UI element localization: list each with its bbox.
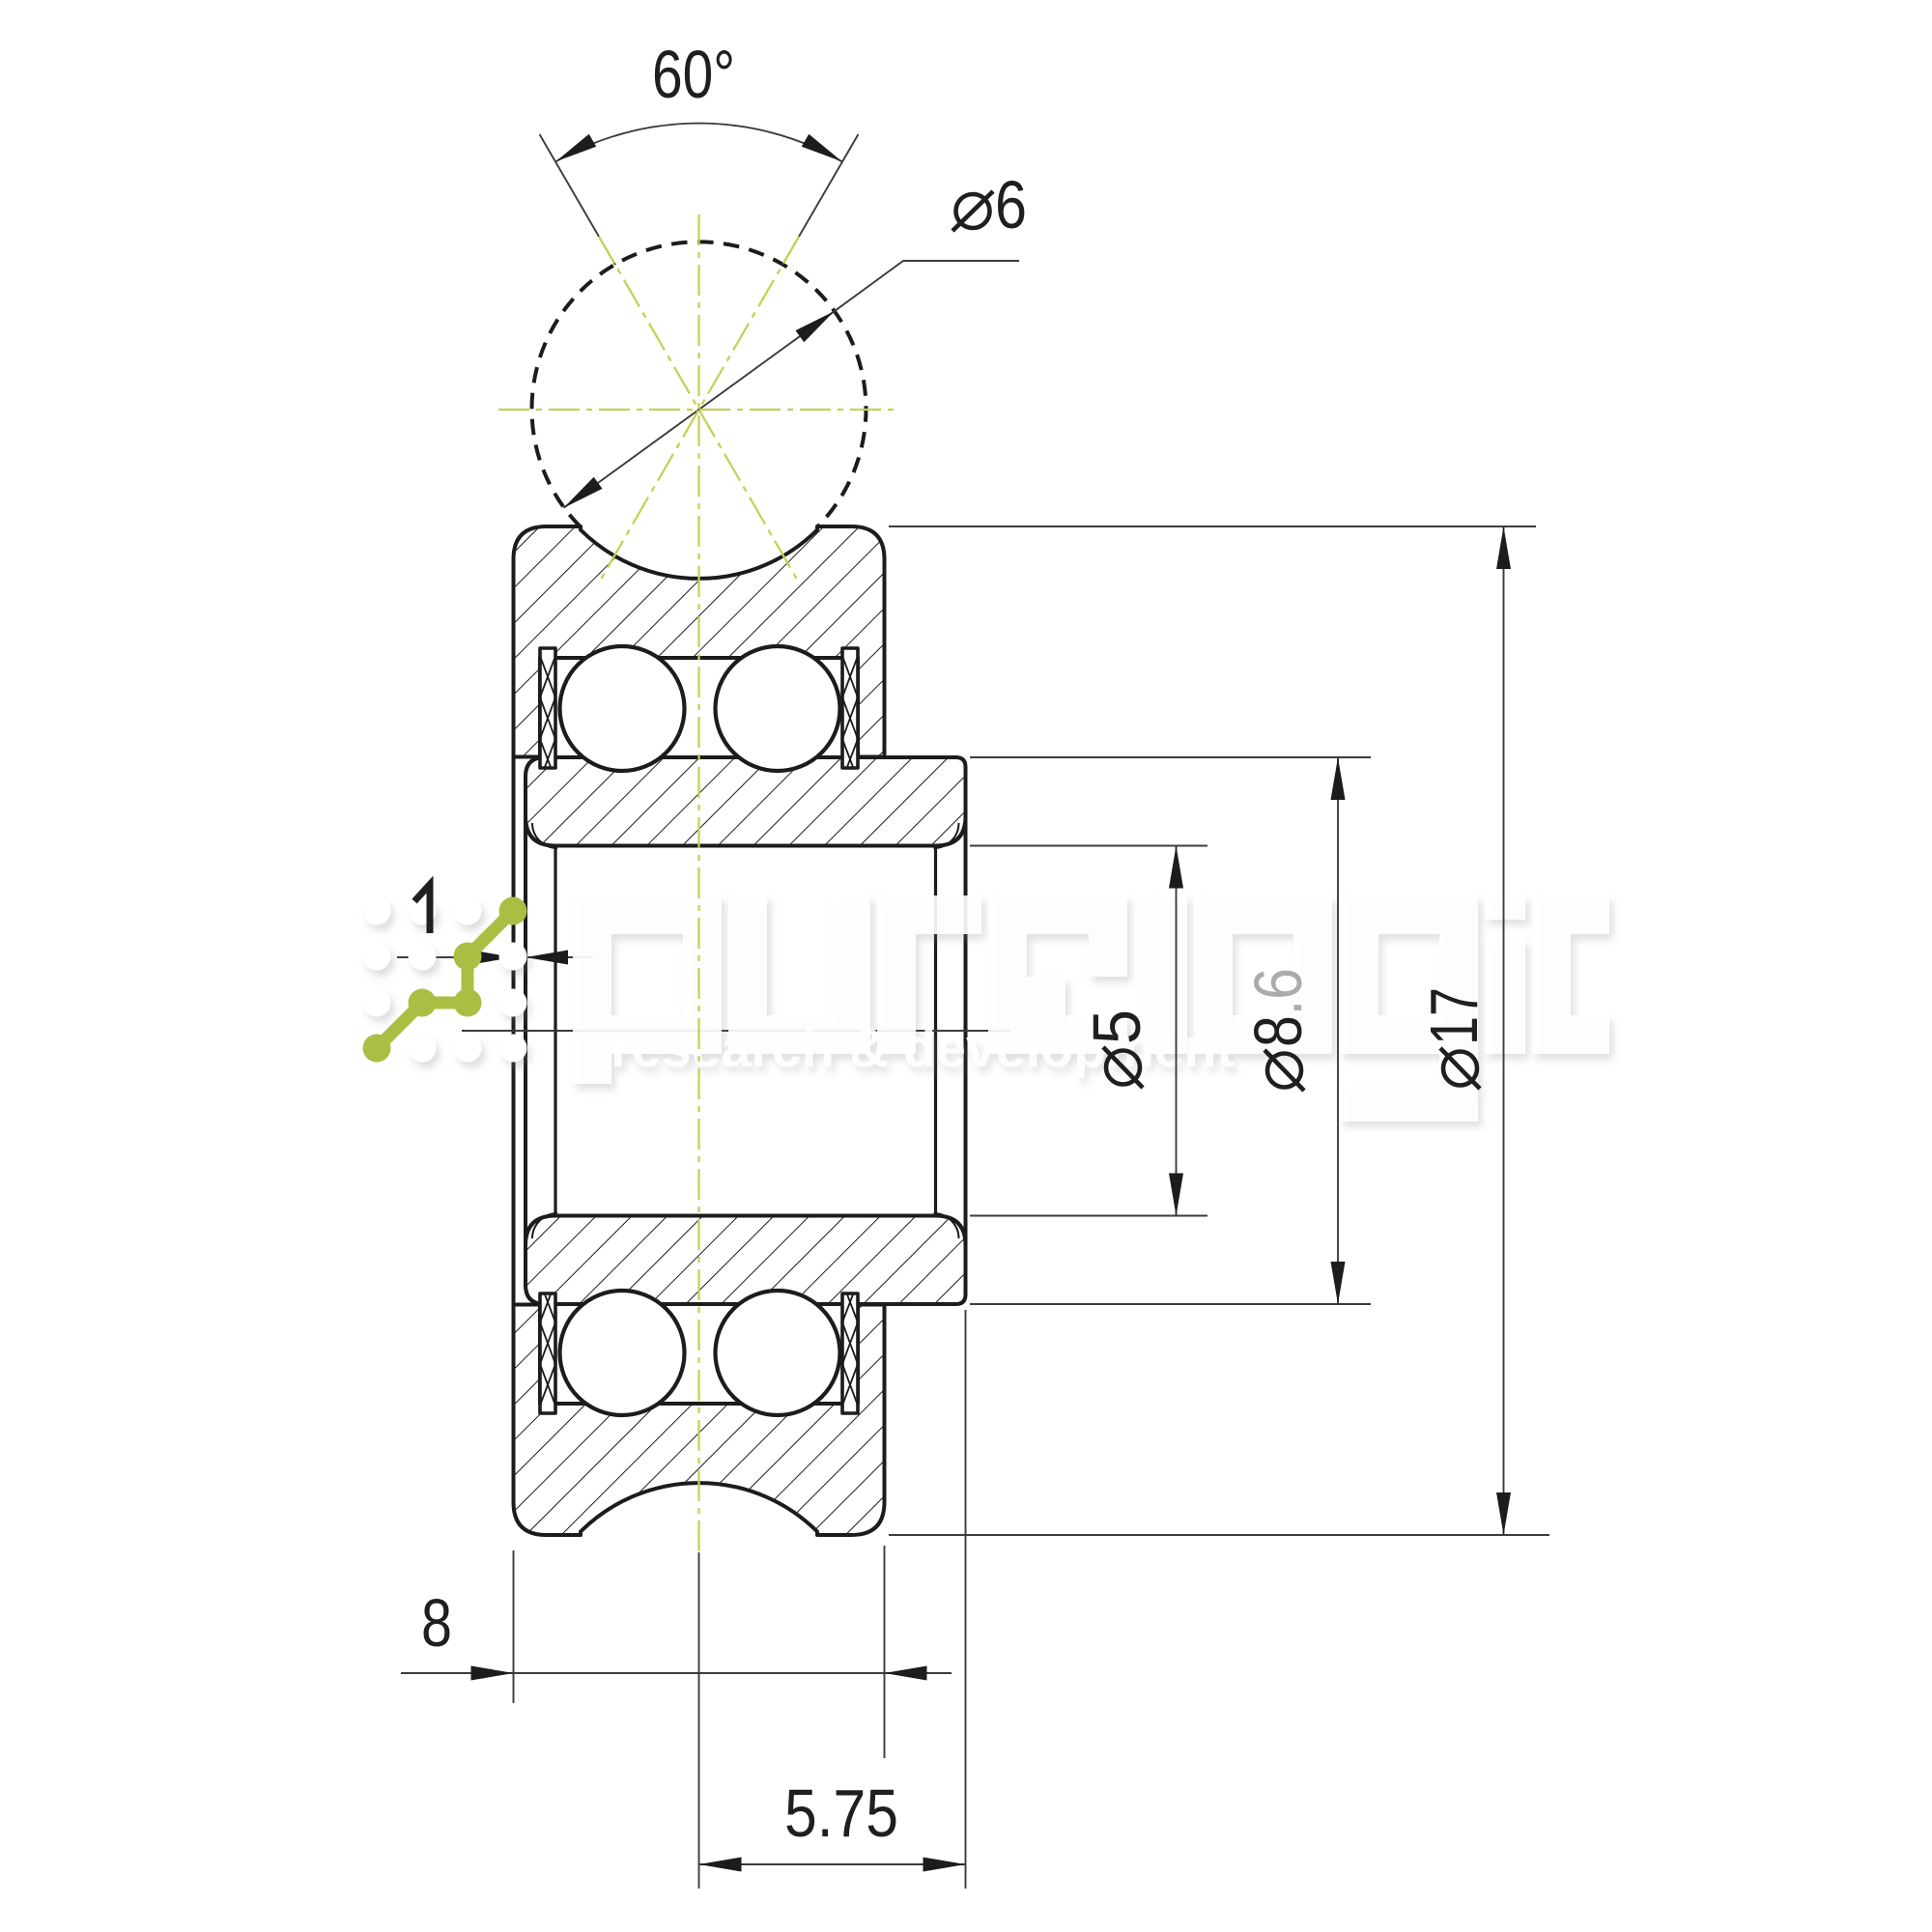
svg-text:8: 8 xyxy=(421,1585,452,1661)
svg-text:5: 5 xyxy=(1079,1009,1154,1044)
svg-text:8.6: 8.6 xyxy=(1240,968,1316,1047)
svg-text:6: 6 xyxy=(995,167,1027,242)
svg-text:60°: 60° xyxy=(652,37,735,112)
svg-text:17: 17 xyxy=(1416,987,1492,1045)
svg-text:5.75: 5.75 xyxy=(784,1776,898,1851)
